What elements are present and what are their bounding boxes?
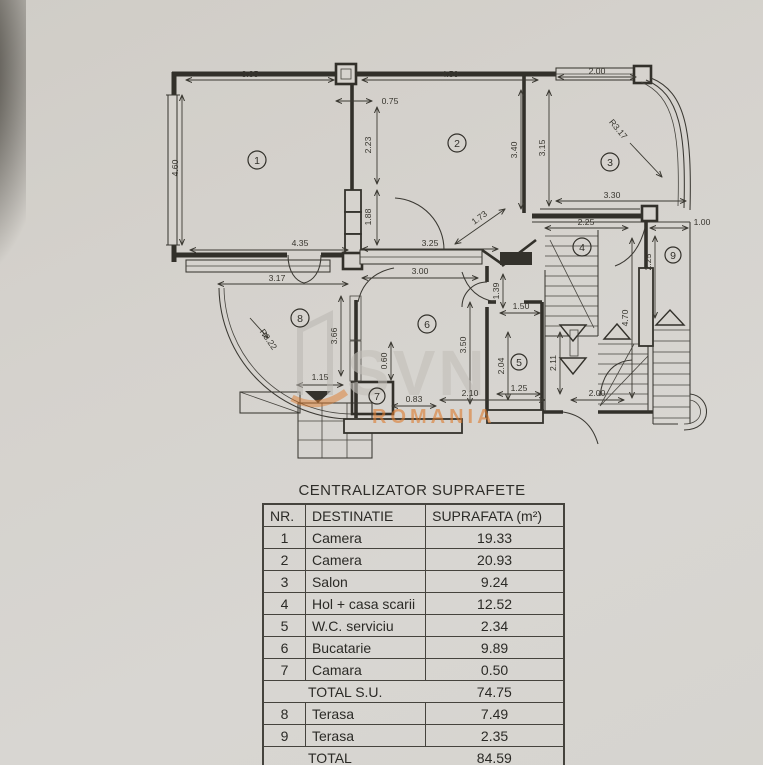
table-total-row: TOTAL84.59: [263, 747, 564, 765]
table-cell: 2: [263, 549, 305, 571]
table-row: 3Salon9.24: [263, 571, 564, 593]
dimension-label: 0.75: [382, 96, 399, 106]
dimension-label: 1.39: [491, 282, 501, 299]
dimension-label: 2.00: [589, 66, 606, 76]
table-title: CENTRALIZATOR SUPRAFETE: [259, 482, 565, 499]
dimension-label: 1.50: [513, 301, 530, 311]
dimension-label: R3.22: [258, 327, 279, 352]
table-cell: 20.93: [426, 549, 564, 571]
dimension-label: 1.15: [312, 372, 329, 382]
scanned-floor-plan-page: SVN ROMANIA 3.854.502.000.752.231.884.60…: [0, 0, 763, 765]
table-row: 5W.C. serviciu2.34: [263, 615, 564, 637]
area-summary-section: CENTRALIZATOR SUPRAFETE NR. DESTINATIE S…: [255, 482, 565, 765]
table-cell: W.C. serviciu: [305, 615, 425, 637]
room-number: 7: [374, 391, 380, 403]
table-row: 1Camera19.33: [263, 527, 564, 549]
room-number: 4: [579, 242, 585, 254]
table-row: 7Camara0.50: [263, 659, 564, 681]
table-cell: 12.52: [426, 593, 564, 615]
dimension-label: 2.00: [589, 388, 606, 398]
dimension-label: 1.00: [694, 217, 711, 227]
table-cell: 9: [263, 725, 305, 747]
table-row: 8Terasa7.49: [263, 703, 564, 725]
dimension-label: 2.25: [578, 217, 595, 227]
room-number: 3: [607, 157, 613, 169]
table-cell: 4: [263, 593, 305, 615]
room-number: 6: [424, 319, 430, 331]
table-cell: 2.34: [426, 615, 564, 637]
dimension-label: 0.60: [379, 352, 389, 369]
exterior-walls: [172, 72, 650, 262]
table-header-row: NR. DESTINATIE SUPRAFATA (m²): [263, 504, 564, 527]
dimension-label: 3.00: [412, 266, 429, 276]
dimension-label: 3.17: [269, 273, 286, 283]
table-row: 9Terasa2.35: [263, 725, 564, 747]
table-row: 4Hol + casa scarii12.52: [263, 593, 564, 615]
watermark-subtext: ROMANIA: [372, 406, 496, 428]
dimension-label: 2.25: [643, 253, 653, 270]
dimension-label: 3.25: [422, 238, 439, 248]
table-cell: 7.49: [426, 703, 564, 725]
table-cell: 74.75: [426, 681, 564, 703]
table-cell: 9.89: [426, 637, 564, 659]
table-cell: Salon: [305, 571, 425, 593]
dimension-label: 1.25: [511, 383, 528, 393]
header-nr: NR.: [263, 504, 305, 527]
dimension-label: 3.85: [242, 69, 259, 79]
dimension-label: 3.66: [329, 327, 339, 344]
dimension-label: 4.50: [442, 69, 459, 79]
table-cell: TOTAL S.U.: [263, 681, 426, 703]
dimension-label: 2.23: [363, 136, 373, 153]
dimension-label: 3.50: [458, 336, 468, 353]
table-cell: Camara: [305, 659, 425, 681]
table-cell: 8: [263, 703, 305, 725]
room-number: 9: [670, 250, 676, 262]
dimension-label: 4.35: [292, 238, 309, 248]
curved-glass-wall: [641, 78, 690, 210]
table-row: 2Camera20.93: [263, 549, 564, 571]
table-cell: 19.33: [426, 527, 564, 549]
table-cell: 0.50: [426, 659, 564, 681]
table-row: 6Bucatarie9.89: [263, 637, 564, 659]
table-total-row: TOTAL S.U.74.75: [263, 681, 564, 703]
room-number: 2: [454, 138, 460, 150]
dimension-label: 1.73: [470, 208, 490, 226]
room-number: 5: [516, 357, 522, 369]
table-cell: 6: [263, 637, 305, 659]
table-cell: 2.35: [426, 725, 564, 747]
header-destinatie: DESTINATIE: [305, 504, 425, 527]
dimension-label: 3.40: [509, 141, 519, 158]
dimension-label: 4.70: [620, 309, 630, 326]
dimension-label: 3.30: [604, 190, 621, 200]
table-cell: 9.24: [426, 571, 564, 593]
area-table: NR. DESTINATIE SUPRAFATA (m²) 1Camera19.…: [262, 503, 565, 765]
table-cell: Camera: [305, 549, 425, 571]
floor-plan-drawing: SVN ROMANIA 3.854.502.000.752.231.884.60…: [0, 0, 763, 480]
dimension-label: R3.17: [607, 117, 630, 141]
table-cell: Camera: [305, 527, 425, 549]
table-cell: Hol + casa scarii: [305, 593, 425, 615]
chimney-and-flues: [336, 64, 362, 269]
table-cell: Terasa: [305, 703, 425, 725]
room-number: 8: [297, 313, 303, 325]
dimension-label: 0.83: [406, 394, 423, 404]
table-cell: 5: [263, 615, 305, 637]
dimension-label: 2.10: [462, 388, 479, 398]
table-cell: 3: [263, 571, 305, 593]
dimension-label: 2.04: [496, 357, 506, 374]
table-cell: 1: [263, 527, 305, 549]
table-cell: TOTAL: [263, 747, 426, 765]
table-cell: 84.59: [426, 747, 564, 765]
area-table-body: 1Camera19.332Camera20.933Salon9.244Hol +…: [263, 527, 564, 765]
table-cell: Bucatarie: [305, 637, 425, 659]
header-suprafata: SUPRAFATA (m²): [426, 504, 564, 527]
dimension-label: 3.15: [537, 139, 547, 156]
table-cell: Terasa: [305, 725, 425, 747]
dimension-label: 4.60: [170, 159, 180, 176]
room-number: 1: [254, 155, 260, 167]
table-cell: 7: [263, 659, 305, 681]
dimension-label: 2.11: [548, 355, 558, 371]
dimension-label: 1.88: [363, 208, 373, 225]
svn-logo-shape: [300, 315, 330, 395]
